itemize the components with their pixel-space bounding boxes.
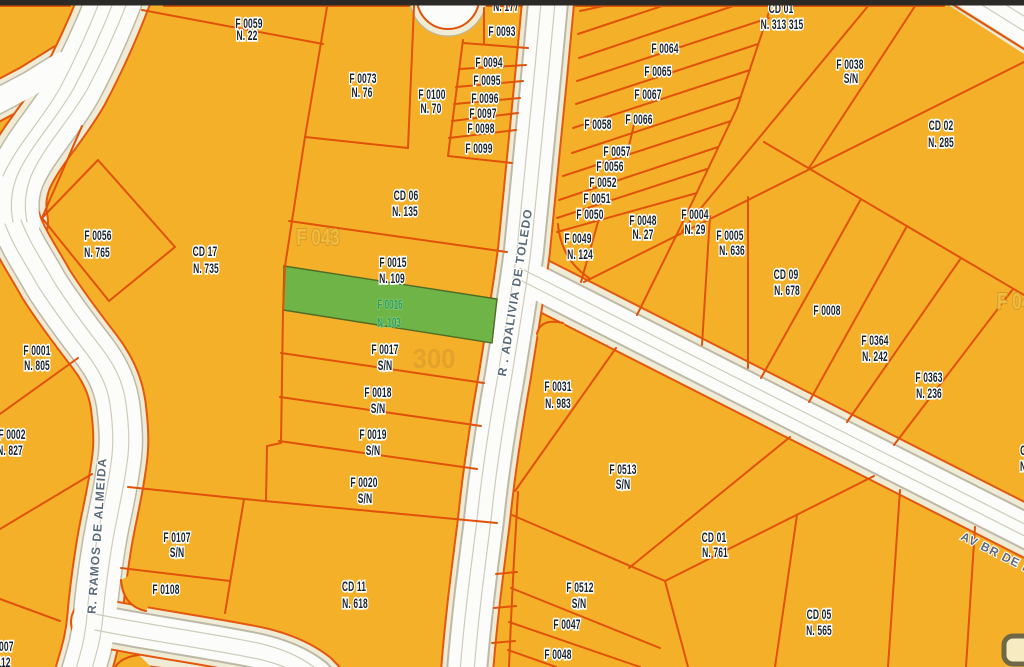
svg-text:F 0064: F 0064 xyxy=(651,42,679,56)
svg-text:N. 29: N. 29 xyxy=(685,223,706,237)
svg-text:N. 735: N. 735 xyxy=(193,262,219,276)
svg-text:F 0108: F 0108 xyxy=(152,583,179,597)
svg-text:F 0004: F 0004 xyxy=(681,208,709,222)
svg-text:S/N: S/N xyxy=(378,359,393,373)
svg-text:N. 103: N. 103 xyxy=(377,316,401,331)
svg-text:CD 0: CD 0 xyxy=(1020,444,1024,458)
svg-text:N. 27: N. 27 xyxy=(633,228,654,242)
svg-text:F 0038: F 0038 xyxy=(836,58,863,72)
svg-text:F 0050: F 0050 xyxy=(576,208,603,222)
svg-text:F 0073: F 0073 xyxy=(349,72,376,86)
svg-text:F 0363: F 0363 xyxy=(915,371,942,385)
svg-text:F 0015: F 0015 xyxy=(379,256,406,270)
svg-text:N. 565: N. 565 xyxy=(806,624,832,638)
svg-text:S/N: S/N xyxy=(616,478,631,492)
svg-text:300: 300 xyxy=(413,343,456,374)
svg-text:N. 124: N. 124 xyxy=(567,248,593,262)
svg-text:F 0020: F 0020 xyxy=(350,476,377,490)
svg-text:F 0017: F 0017 xyxy=(371,343,398,357)
svg-text:N. 636: N. 636 xyxy=(719,244,745,258)
svg-text:F 0513: F 0513 xyxy=(609,463,636,477)
svg-text:F 0107: F 0107 xyxy=(163,531,190,545)
svg-text:F 0095: F 0095 xyxy=(473,74,500,88)
svg-text:F 0066: F 0066 xyxy=(625,113,652,127)
svg-text:F 0052: F 0052 xyxy=(589,176,616,190)
svg-text:F 0100: F 0100 xyxy=(418,88,445,102)
svg-text:N. 236: N. 236 xyxy=(916,387,942,401)
svg-text:F 0364: F 0364 xyxy=(861,334,889,348)
svg-text:S/N: S/N xyxy=(844,72,859,86)
svg-text:N. 76: N. 76 xyxy=(352,86,373,100)
svg-text:N. 135: N. 135 xyxy=(392,205,418,219)
svg-text:F 0051: F 0051 xyxy=(583,192,610,206)
svg-text:F 0057: F 0057 xyxy=(603,145,630,159)
svg-text:F 0065: F 0065 xyxy=(644,65,671,79)
svg-text:F 0093: F 0093 xyxy=(488,25,515,39)
svg-text:S/N: S/N xyxy=(358,492,373,506)
svg-text:F 0094: F 0094 xyxy=(475,56,503,70)
svg-text:F 0007: F 0007 xyxy=(0,640,14,654)
svg-text:CD 01: CD 01 xyxy=(702,531,727,545)
svg-text:F 0067: F 0067 xyxy=(634,88,661,102)
svg-text:N. 827: N. 827 xyxy=(0,444,23,458)
svg-text:CD 06: CD 06 xyxy=(394,189,419,203)
svg-text:N. 618: N. 618 xyxy=(342,597,368,611)
svg-text:F 0001: F 0001 xyxy=(23,344,50,358)
svg-text:F 0097: F 0097 xyxy=(469,107,496,121)
svg-text:N. 2: N. 2 xyxy=(1020,460,1024,474)
svg-text:F 0512: F 0512 xyxy=(566,581,593,595)
svg-text:F 04: F 04 xyxy=(997,290,1024,315)
svg-text:F 0048: F 0048 xyxy=(544,648,571,662)
svg-text:S/N: S/N xyxy=(371,402,386,416)
svg-text:N. 761: N. 761 xyxy=(702,546,728,560)
svg-text:N. 765: N. 765 xyxy=(84,246,110,260)
svg-text:N. 983: N. 983 xyxy=(545,397,571,411)
svg-text:N. 242: N. 242 xyxy=(862,350,888,364)
svg-text:CD 11: CD 11 xyxy=(342,580,366,594)
svg-text:F 0096: F 0096 xyxy=(471,92,498,106)
svg-text:CD 09: CD 09 xyxy=(774,268,799,282)
svg-text:N. 805: N. 805 xyxy=(24,359,50,373)
svg-text:F 0056: F 0056 xyxy=(84,229,111,243)
svg-text:N. 285: N. 285 xyxy=(928,136,954,150)
svg-text:S/N: S/N xyxy=(366,444,381,458)
svg-text:F 0019: F 0019 xyxy=(359,428,386,442)
svg-text:F 0058: F 0058 xyxy=(584,118,611,132)
svg-text:N. 70: N. 70 xyxy=(421,102,442,116)
svg-text:N. 313 315: N. 313 315 xyxy=(761,18,804,32)
svg-text:S/N: S/N xyxy=(572,597,587,611)
svg-text:F 0048: F 0048 xyxy=(629,214,656,228)
svg-text:F 0002: F 0002 xyxy=(0,428,26,442)
svg-text:F 043: F 043 xyxy=(296,226,339,251)
svg-text:N. 678: N. 678 xyxy=(774,284,800,298)
svg-text:F 0056: F 0056 xyxy=(596,160,623,174)
svg-text:F 0018: F 0018 xyxy=(364,386,391,400)
svg-text:N. 112: N. 112 xyxy=(0,656,11,667)
svg-text:S/N: S/N xyxy=(170,546,185,560)
svg-text:N. 109: N. 109 xyxy=(379,272,405,286)
svg-text:F 0031: F 0031 xyxy=(544,380,571,394)
svg-text:F 0049: F 0049 xyxy=(564,232,591,246)
svg-text:N. 22: N. 22 xyxy=(237,29,258,43)
svg-text:F 0099: F 0099 xyxy=(465,142,492,156)
svg-text:F 0047: F 0047 xyxy=(553,618,580,632)
svg-text:CD 05: CD 05 xyxy=(807,608,832,622)
svg-text:CD 17: CD 17 xyxy=(193,245,218,259)
svg-text:F 0098: F 0098 xyxy=(467,122,494,136)
svg-text:F 0008: F 0008 xyxy=(813,304,840,318)
svg-text:F 0016: F 0016 xyxy=(377,298,402,313)
svg-text:F 0005: F 0005 xyxy=(716,229,743,243)
svg-text:CD 02: CD 02 xyxy=(929,119,954,133)
